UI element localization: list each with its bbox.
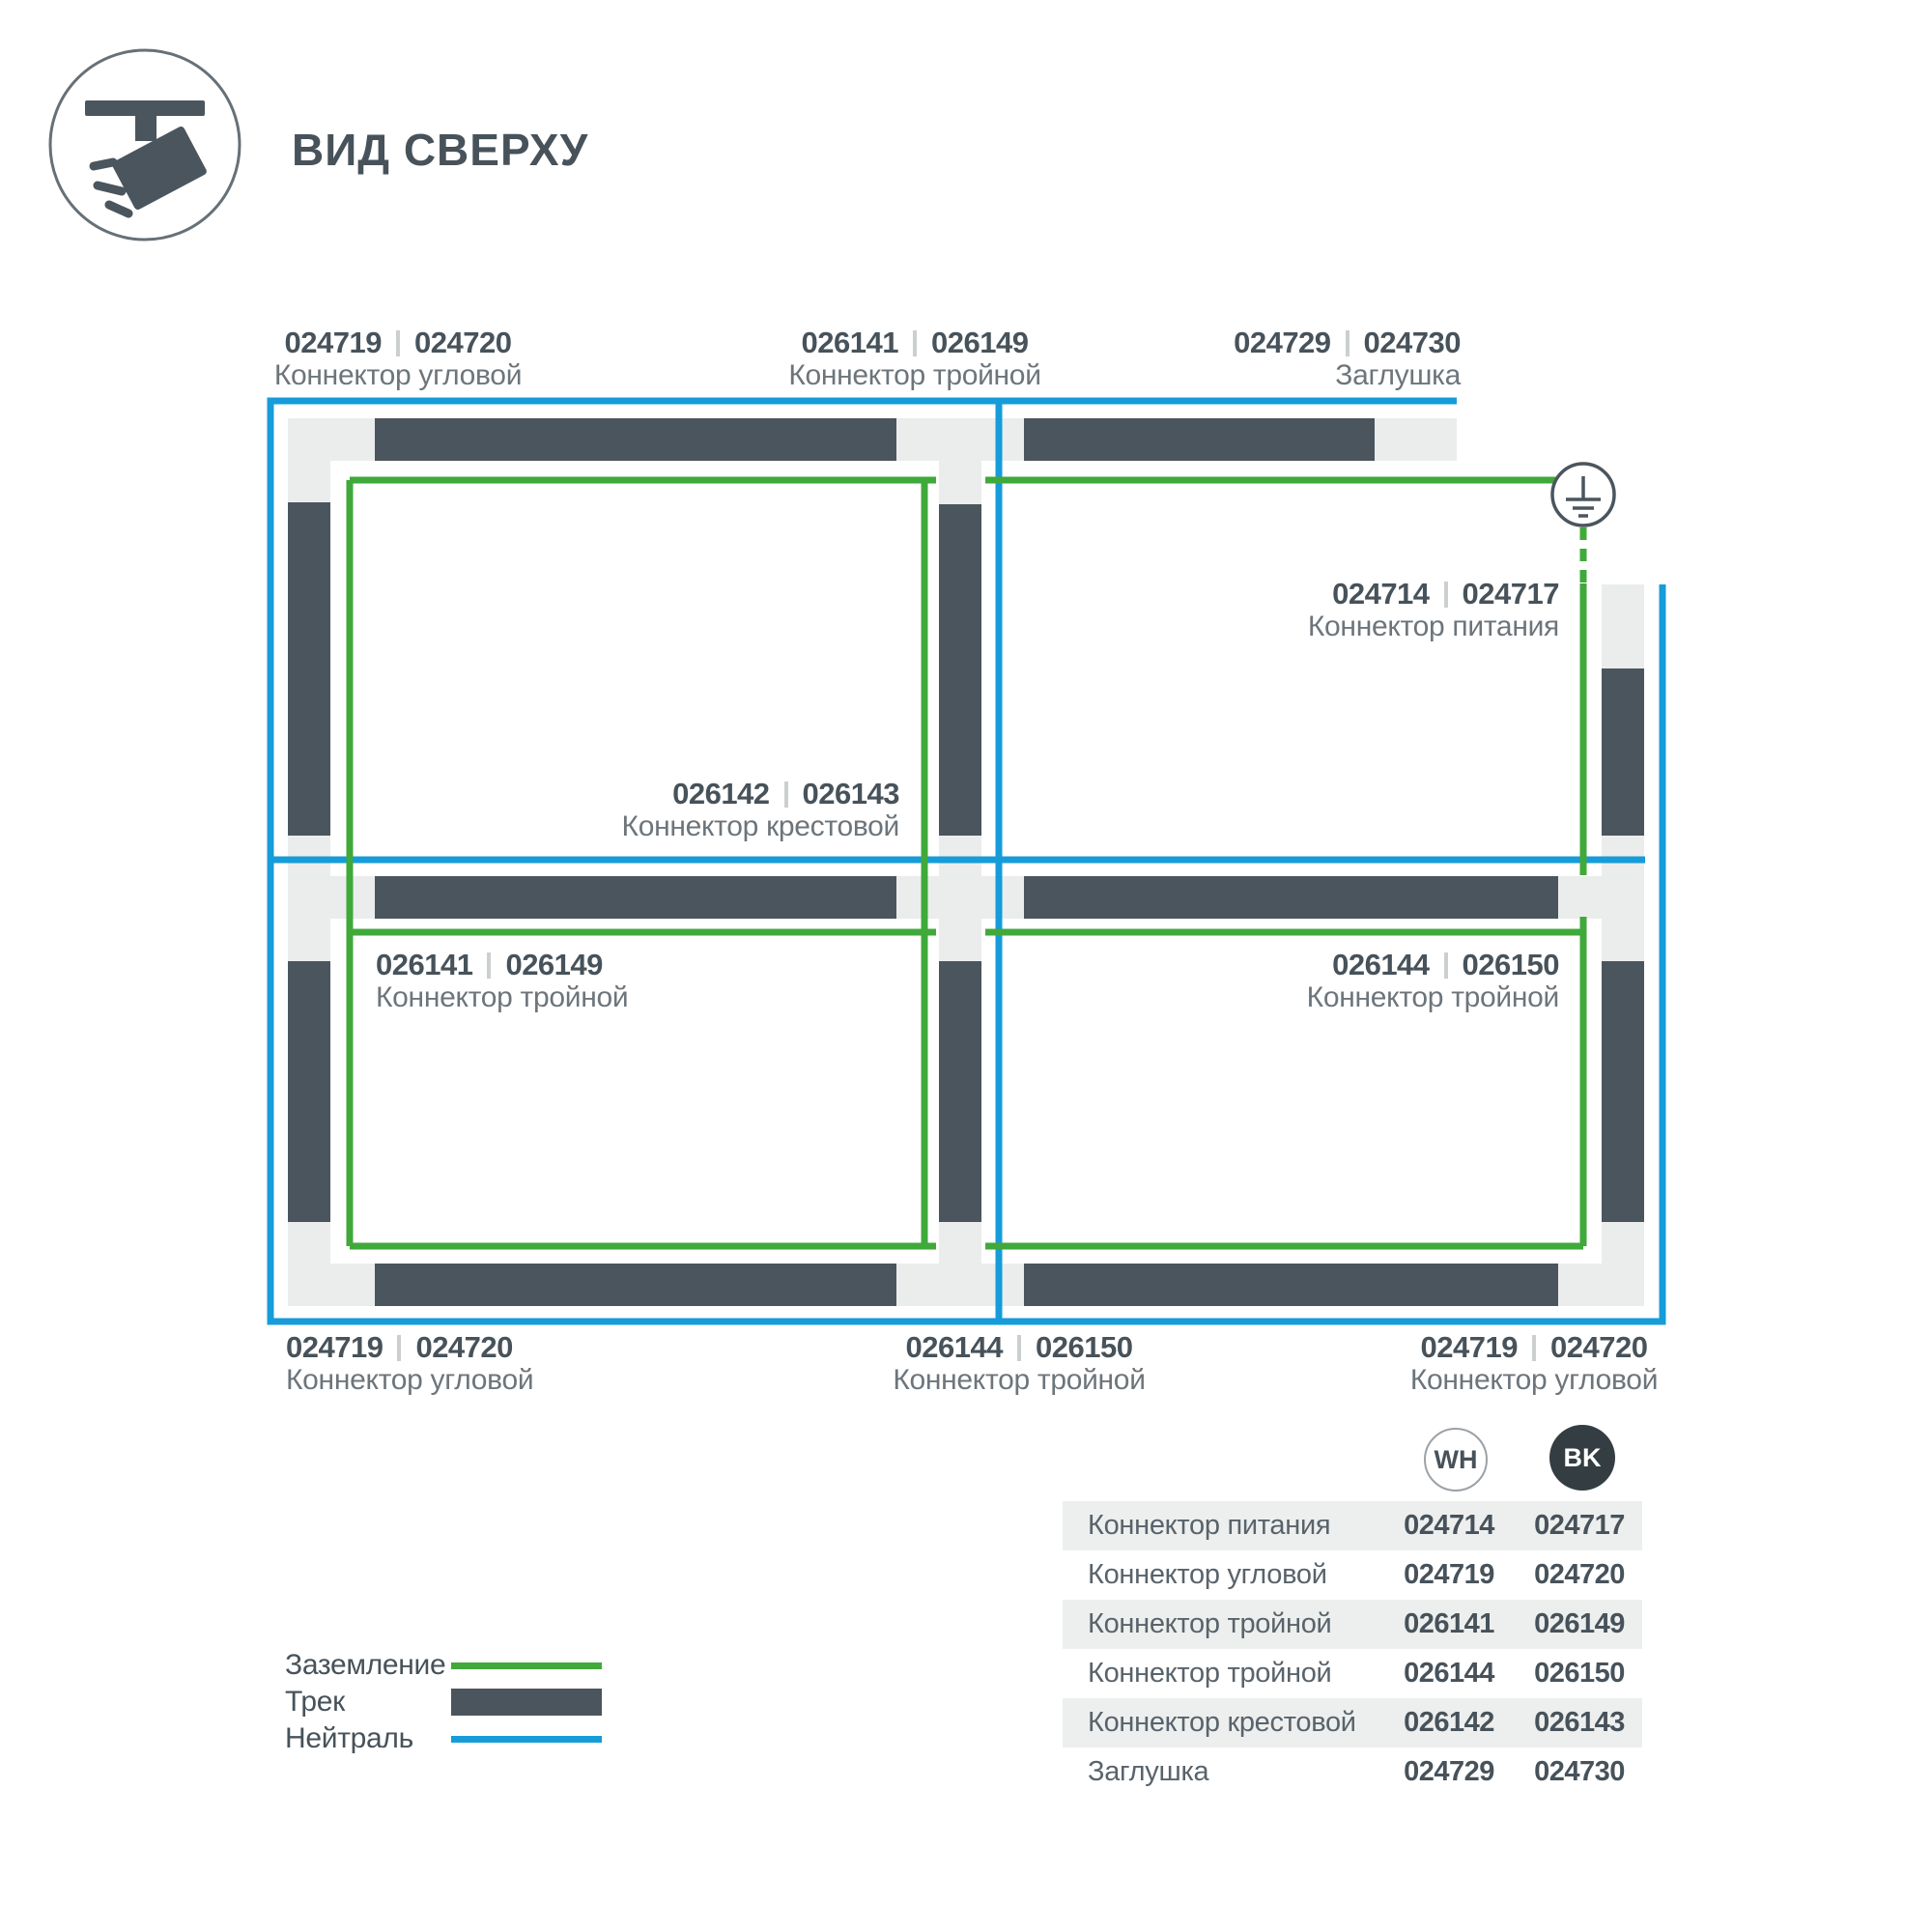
table-row: Коннектор крестовой 026142 026143 [1063,1698,1642,1747]
color-badge-white: WH [1424,1428,1488,1492]
code-divider [1346,330,1350,356]
table-row: Коннектор питания 024714 024717 [1063,1501,1642,1550]
part-name: Коннектор угловой [286,1364,692,1396]
code-divider [1532,1335,1536,1361]
part-codes: 024729024730 [1074,327,1461,359]
code-divider [397,1335,401,1361]
label-corner-connector-bottom-left: 024719024720 Коннектор угловой [286,1331,692,1396]
part-codes: 024719024720 [1341,1331,1727,1364]
legend-label: Трек [285,1686,451,1719]
legend-item-track: Трек [285,1684,602,1720]
track-spotlight-icon [50,50,240,240]
part-name: Коннектор крестовой [494,810,899,842]
label-t-connector-top: 026141026149 Коннектор тройной [722,327,1108,391]
part-codes: 026142026143 [494,778,899,810]
table-row: Коннектор тройной 026141 026149 [1063,1600,1642,1649]
code-divider [913,330,917,356]
label-t-connector-middle-left: 026141026149 Коннектор тройной [376,949,781,1013]
label-corner-connector-top-left: 024719024720 Коннектор угловой [205,327,591,391]
legend: Заземление Трек Нейтраль [285,1647,602,1757]
page-title: ВИД СВЕРХУ [292,124,588,176]
parts-table: Коннектор питания 024714 024717 Коннекто… [1063,1501,1642,1797]
part-name: Коннектор угловой [1341,1364,1727,1396]
part-name: Коннектор тройной [1153,981,1559,1013]
earth-ground-icon [1552,464,1614,526]
part-codes: 026144026150 [1153,949,1559,981]
legend-item-neutral: Нейтраль [285,1720,602,1757]
label-power-connector: 024714024717 Коннектор питания [1153,578,1559,642]
code-divider [1444,952,1448,979]
label-end-cap: 024729024730 Заглушка [1074,327,1461,391]
part-name: Коннектор питания [1153,611,1559,642]
part-name: Коннектор тройной [722,359,1108,391]
legend-label: Заземление [285,1649,451,1682]
part-codes: 024719024720 [205,327,591,359]
code-divider [396,330,400,356]
table-row: Коннектор угловой 024719 024720 [1063,1550,1642,1600]
table-row: Заглушка 024729 024730 [1063,1747,1642,1797]
code-divider [1444,582,1448,608]
part-name: Коннектор тройной [376,981,781,1013]
blue-line-swatch [451,1736,602,1743]
code-divider [487,952,491,979]
part-codes: 024719024720 [286,1331,692,1364]
legend-label: Нейтраль [285,1722,451,1755]
code-divider [784,781,788,808]
part-name: Заглушка [1074,359,1461,391]
track-bar-swatch [451,1689,602,1716]
legend-item-ground: Заземление [285,1647,602,1684]
label-cross-connector: 026142026143 Коннектор крестовой [494,778,899,842]
code-divider [1017,1335,1021,1361]
part-name: Коннектор угловой [205,359,591,391]
page: { "header": { "title": "ВИД СВЕРХУ", "ic… [0,0,1932,1932]
label-t-connector-bottom: 026144026150 Коннектор тройной [826,1331,1212,1396]
label-corner-connector-bottom-right: 024719024720 Коннектор угловой [1341,1331,1727,1396]
label-t-connector-middle-right: 026144026150 Коннектор тройной [1153,949,1559,1013]
diagram-canvas [0,0,1932,1932]
green-line-swatch [451,1662,602,1669]
part-name: Коннектор тройной [826,1364,1212,1396]
color-badge-black: BK [1549,1425,1615,1491]
part-codes: 026144026150 [826,1331,1212,1364]
part-codes: 026141026149 [722,327,1108,359]
table-row: Коннектор тройной 026144 026150 [1063,1649,1642,1698]
part-codes: 026141026149 [376,949,781,981]
part-codes: 024714024717 [1153,578,1559,611]
